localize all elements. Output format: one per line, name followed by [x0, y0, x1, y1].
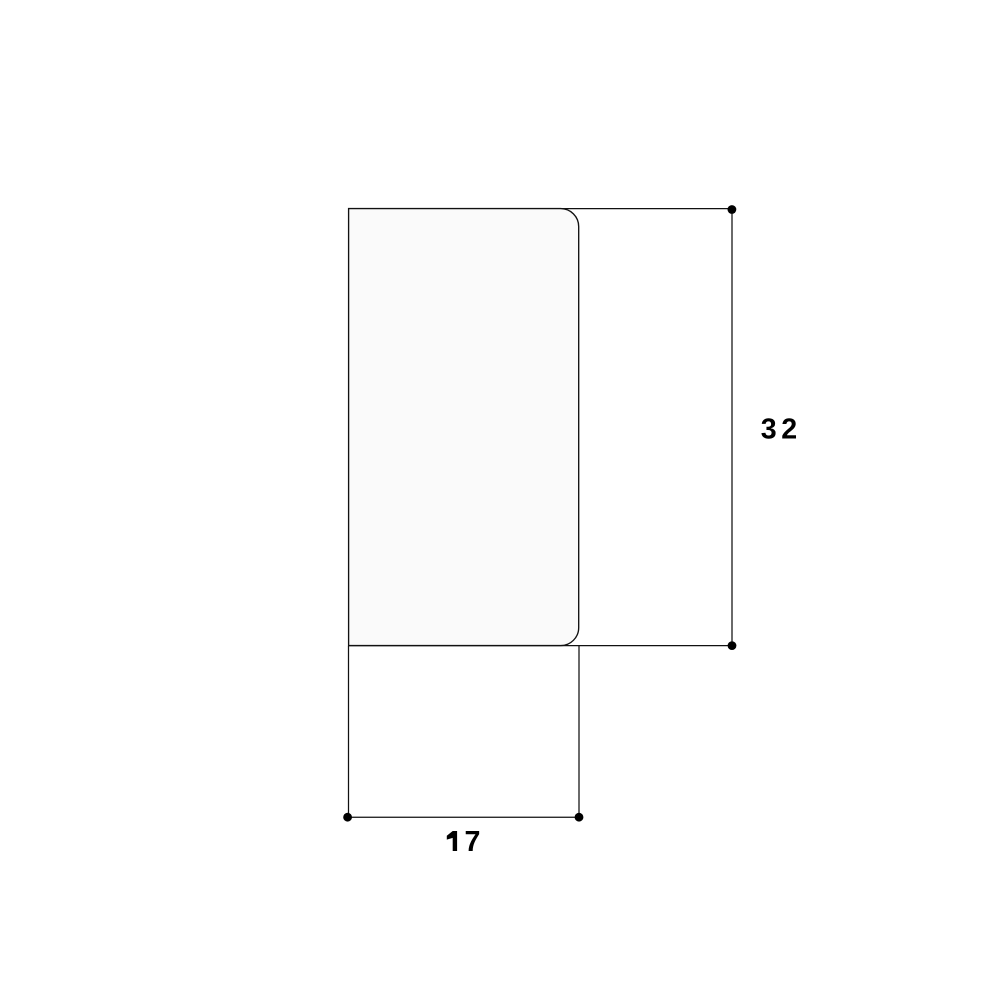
svg-text:32: 32	[761, 414, 802, 446]
svg-text:7: 7	[465, 826, 481, 858]
